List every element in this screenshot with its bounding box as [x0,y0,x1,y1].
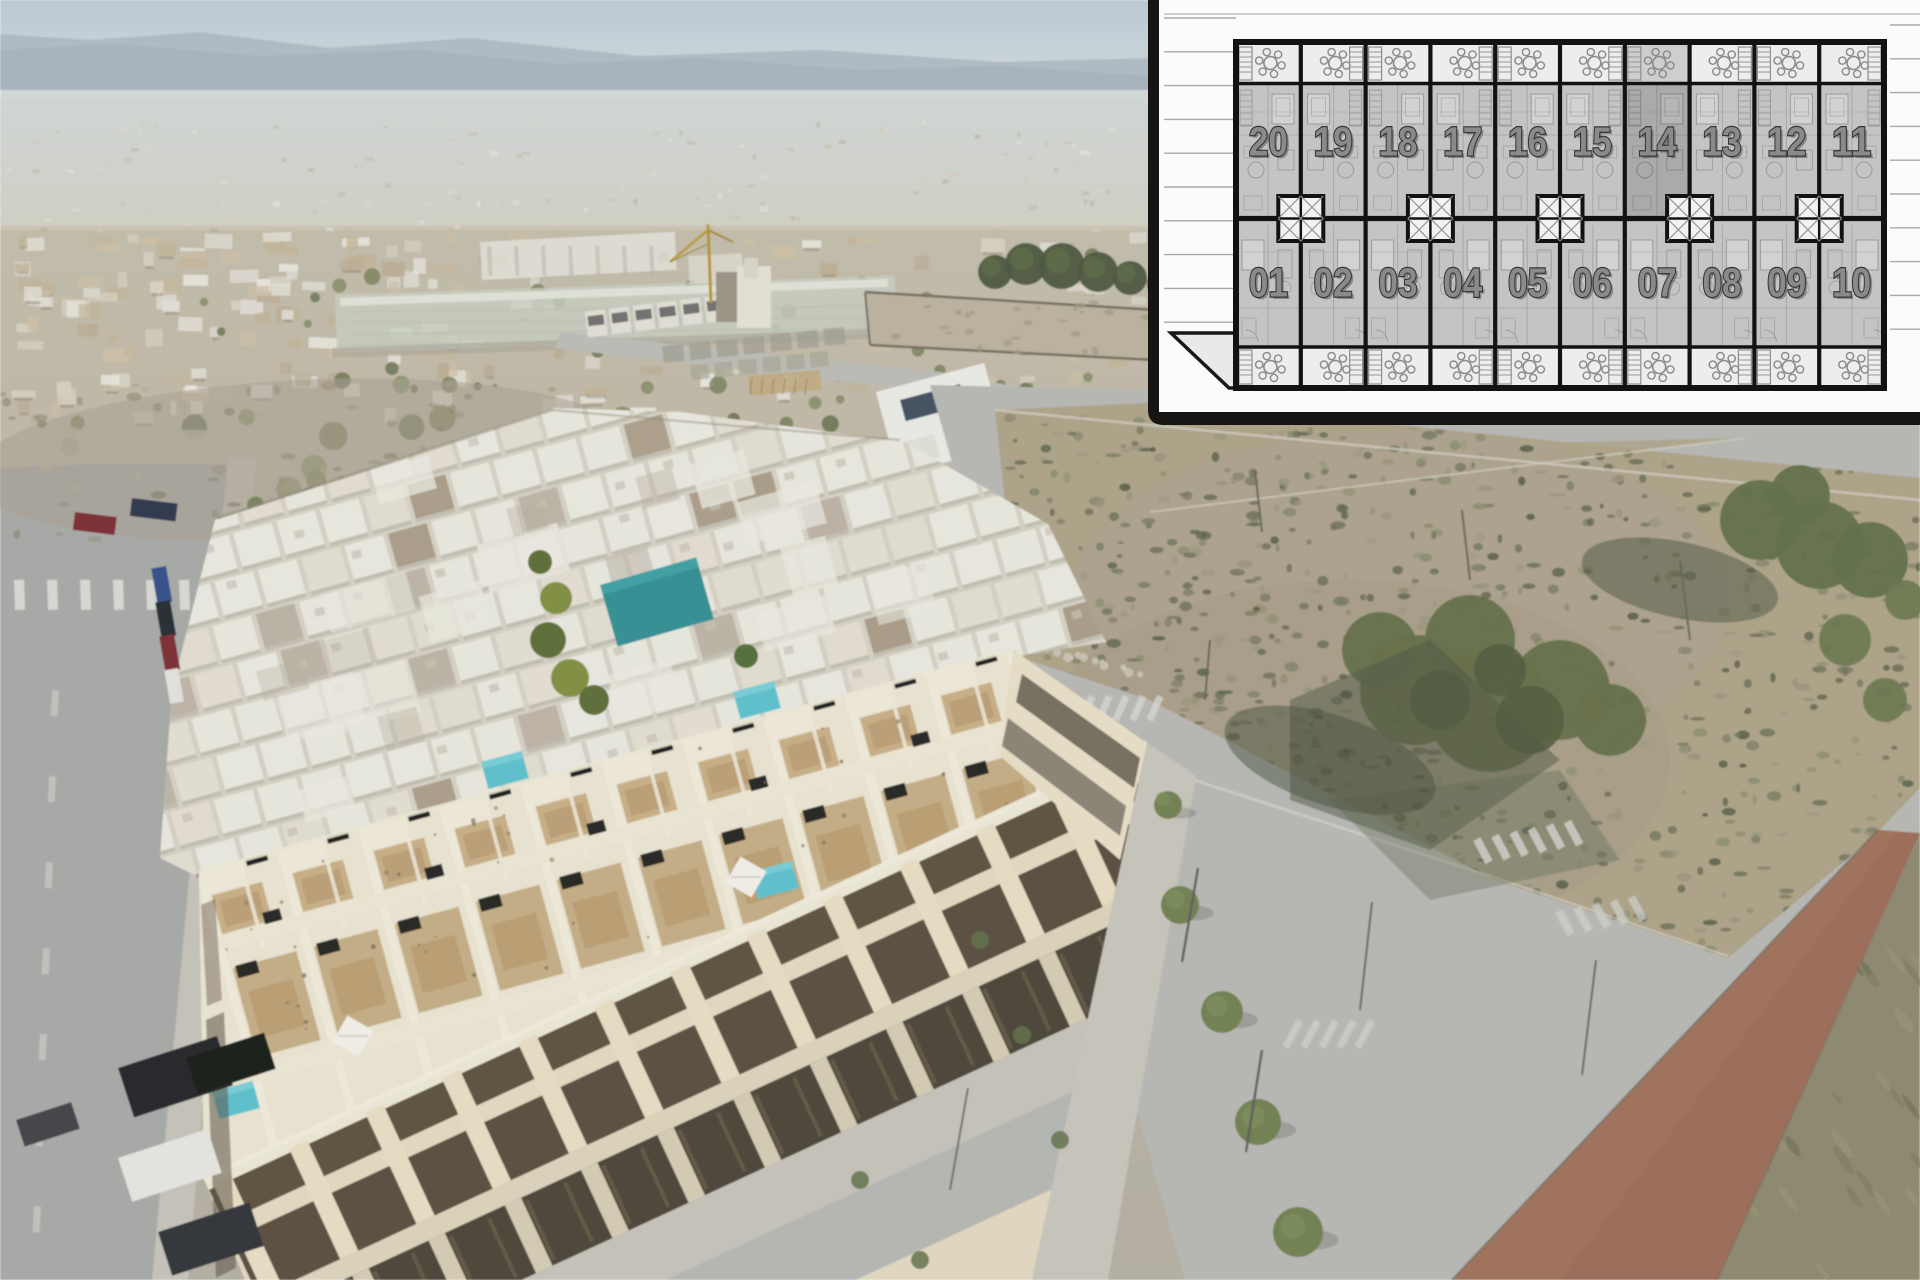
svg-text:17: 17 [1443,119,1482,165]
svg-text:18: 18 [1379,119,1418,165]
svg-text:10: 10 [1832,260,1871,306]
svg-text:15: 15 [1573,119,1612,165]
svg-text:06: 06 [1573,260,1612,306]
svg-text:03: 03 [1379,260,1418,306]
svg-text:01: 01 [1249,260,1288,306]
svg-text:09: 09 [1767,260,1806,306]
svg-text:04: 04 [1443,260,1482,306]
svg-text:13: 13 [1703,119,1742,165]
svg-text:08: 08 [1703,260,1742,306]
svg-text:12: 12 [1767,119,1806,165]
svg-text:05: 05 [1508,260,1547,306]
svg-text:02: 02 [1314,260,1353,306]
svg-text:14: 14 [1638,119,1677,165]
svg-text:07: 07 [1638,260,1677,306]
svg-text:16: 16 [1508,119,1547,165]
svg-text:11: 11 [1832,119,1871,165]
svg-text:19: 19 [1314,119,1353,165]
svg-text:20: 20 [1249,119,1288,165]
